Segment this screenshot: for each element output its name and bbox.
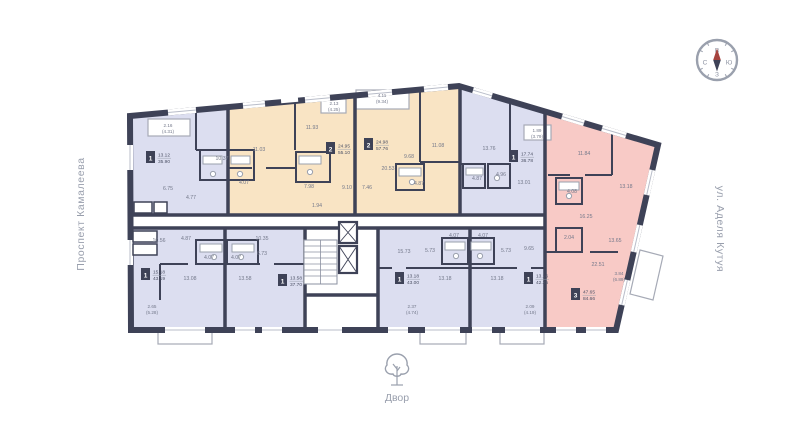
badge-apt-3[interactable]: 2 24.98 57.76 [364, 138, 389, 152]
badge-apt-4[interactable]: 1 17.74 36.78 [509, 150, 534, 164]
svg-text:47.65: 47.65 [583, 290, 595, 296]
room-area-label: 10.56 [153, 238, 166, 244]
balcony-label: 2.09 [526, 304, 535, 309]
compass: В Ю З С [697, 40, 737, 80]
room-area-label: 16.25 [580, 214, 593, 220]
svg-text:37.70: 37.70 [290, 282, 302, 288]
room-area-label: 2.04 [564, 235, 574, 241]
balcony-label: 4.11 [378, 93, 387, 98]
bathtub [399, 168, 421, 176]
room-area-label: 4.07 [204, 255, 214, 261]
svg-text:1: 1 [512, 155, 516, 162]
svg-text:2: 2 [367, 143, 371, 150]
room-area-label: 13.18 [491, 276, 504, 282]
room-area-label: 13.18 [439, 276, 452, 282]
room-area-label: 9.68 [404, 154, 414, 160]
room-area-label: 9.65 [524, 246, 534, 252]
room-area-label: 13.76 [483, 146, 496, 152]
wc [307, 169, 312, 174]
room-area-label: 13.01 [518, 180, 531, 186]
svg-text:1: 1 [398, 277, 402, 284]
bathtub [231, 156, 250, 164]
room-area-label: 13.65 [609, 238, 622, 244]
compass-letter-right: Ю [726, 60, 733, 67]
badge-apt-8[interactable]: 1 13.18 43.00 [395, 272, 420, 286]
svg-text:43.19: 43.19 [153, 276, 165, 282]
balcony-label: 3.84 [615, 271, 624, 276]
room-area-label: 4.07 [478, 233, 488, 239]
room-area-label: 20.53 [382, 166, 395, 172]
svg-text:17.74: 17.74 [521, 152, 533, 158]
room-area-label: 4.07 [449, 233, 459, 239]
balcony-label: (3.79) [531, 134, 543, 139]
balcony-label: (4.74) [406, 310, 418, 315]
wc [237, 171, 242, 176]
svg-text:55.10: 55.10 [338, 150, 350, 156]
balcony-label: (4.31) [162, 129, 174, 134]
room-area-label: 11.08 [432, 143, 445, 149]
room-area-label: 4.87 [414, 181, 424, 187]
wc [210, 171, 215, 176]
balcony-label: (4.19) [524, 310, 536, 315]
balcony-label: 2.16 [164, 123, 173, 128]
balcony-label: 1.89 [533, 128, 542, 133]
svg-text:13.16: 13.16 [536, 274, 548, 280]
floor-plan-page: 1 13.12 35.90 2 24.95 55.10 2 24.98 57.7… [0, 0, 800, 438]
courtyard-marker: Двор [385, 354, 409, 404]
room-area-label: 15.73 [398, 249, 411, 255]
svg-text:42.35: 42.35 [536, 280, 548, 286]
room-area-label: 13.08 [184, 276, 197, 282]
svg-text:24.95: 24.95 [338, 144, 350, 150]
balcony-label: 2.65 [148, 304, 157, 309]
bathtub [200, 244, 222, 252]
street-label-right: ул. Аделя Кутуя [714, 186, 726, 272]
svg-text:13.18: 13.18 [407, 274, 419, 280]
wc [453, 253, 458, 258]
balcony-label: (4.25) [328, 107, 340, 112]
svg-text:13.58: 13.58 [290, 276, 302, 282]
compass-letter-bottom: З [715, 72, 719, 79]
room-area-label: 4.87 [472, 176, 482, 182]
room-area-label: 4.96 [496, 172, 506, 178]
room-area-label: 10.37 [216, 156, 229, 162]
svg-text:84.66: 84.66 [583, 296, 595, 302]
svg-text:43.00: 43.00 [407, 280, 419, 286]
room-area-label: 4.07 [231, 255, 241, 261]
room-area-label: 11.93 [306, 125, 319, 131]
room-area-label: 6.73 [257, 251, 267, 257]
room-area-label: 22.51 [592, 262, 605, 268]
room-area-label: 4.08 [567, 189, 577, 195]
courtyard-label: Двор [385, 392, 409, 404]
balcony-label: (9.34) [376, 99, 388, 104]
svg-text:1: 1 [281, 279, 285, 286]
room-area-label: 7.46 [362, 185, 372, 191]
svg-text:24.98: 24.98 [376, 140, 388, 146]
room-area-label: 13.58 [239, 276, 252, 282]
room-area-label: 1.94 [312, 203, 322, 209]
room-area-label: 11.03 [253, 147, 266, 153]
badge-apt-2[interactable]: 2 24.95 55.10 [326, 142, 351, 156]
svg-text:36.78: 36.78 [521, 158, 533, 164]
street-label-left: Проспект Камалеева [75, 157, 87, 270]
room-area-label: 6.75 [163, 186, 173, 192]
wc [477, 253, 482, 258]
room-area-label: 4.07 [239, 180, 249, 186]
bathtub [232, 244, 254, 252]
room-area-label: 13.18 [620, 184, 633, 190]
balcony-label: (6.89) [613, 277, 625, 282]
svg-text:15.18: 15.18 [153, 270, 165, 276]
bathtub [299, 156, 321, 164]
badge-apt-7[interactable]: 1 13.58 37.70 [278, 274, 303, 288]
badge-apt-5[interactable]: 3 47.65 84.66 [571, 288, 596, 302]
bathtub [471, 242, 491, 250]
badge-apt-1[interactable]: 1 13.12 35.90 [146, 151, 171, 165]
balcony-label: (5.28) [146, 310, 158, 315]
room-area-label: 9.10 [342, 185, 352, 191]
room-area-label: 10.35 [256, 236, 269, 242]
room-area-label: 7.98 [304, 184, 314, 190]
svg-text:1: 1 [149, 156, 153, 163]
bathtub [445, 242, 465, 250]
svg-text:3: 3 [574, 293, 578, 300]
svg-text:35.90: 35.90 [158, 159, 170, 165]
floor-plan-svg: 1 13.12 35.90 2 24.95 55.10 2 24.98 57.7… [0, 0, 800, 438]
badge-apt-9[interactable]: 1 13.16 42.35 [524, 272, 549, 286]
balcony-label: 2.13 [330, 101, 339, 106]
svg-text:2: 2 [329, 147, 333, 154]
room-area-label: 4.87 [181, 236, 191, 242]
bathtub [466, 168, 483, 175]
svg-text:1: 1 [144, 273, 148, 280]
compass-letter-left: С [703, 60, 708, 67]
room-area-label: 5.73 [501, 248, 511, 254]
svg-text:13.12: 13.12 [158, 153, 170, 159]
room-area-label: 4.77 [186, 195, 196, 201]
svg-text:57.76: 57.76 [376, 146, 388, 152]
svg-text:1: 1 [527, 277, 531, 284]
room-area-label: 5.73 [425, 248, 435, 254]
badge-apt-6[interactable]: 1 15.18 43.19 [141, 268, 166, 282]
balcony-label: 2.37 [408, 304, 417, 309]
room-area-label: 11.84 [578, 151, 591, 157]
